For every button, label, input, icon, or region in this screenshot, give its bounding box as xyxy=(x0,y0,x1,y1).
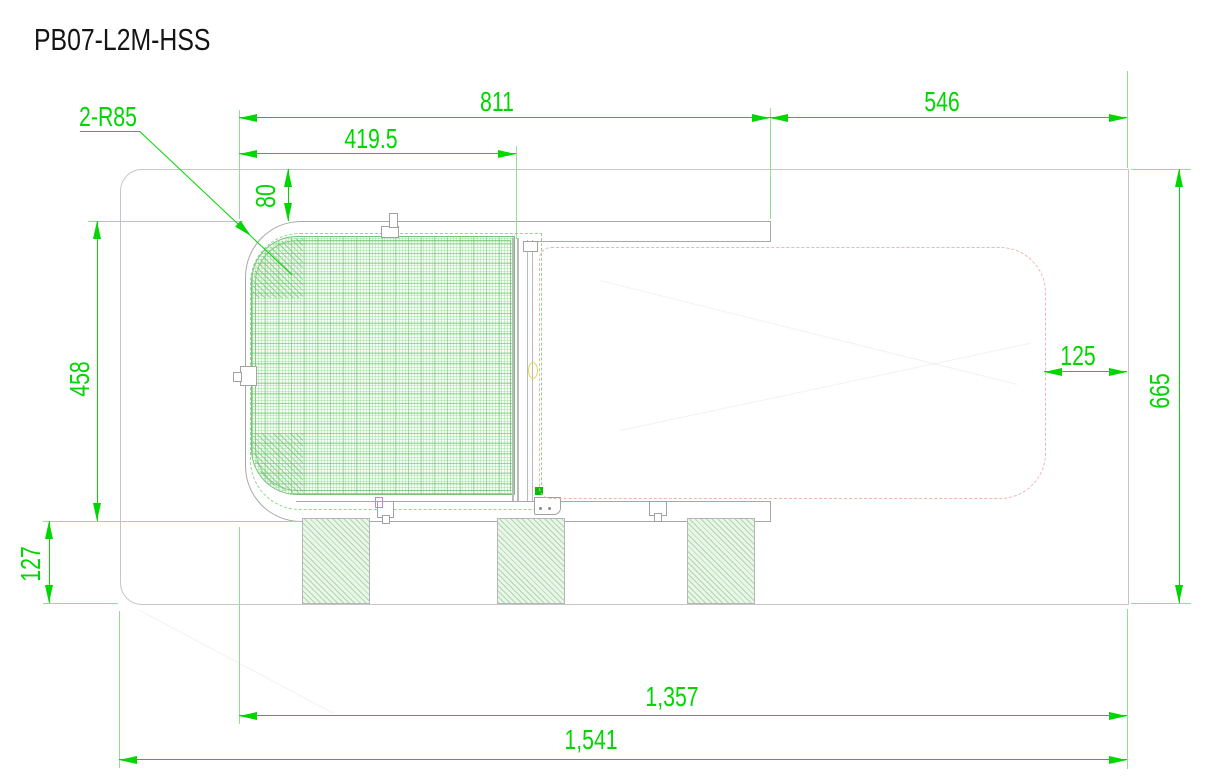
dim-arrow xyxy=(239,114,257,122)
extension-line xyxy=(88,221,243,222)
dim-label-546: 546 xyxy=(924,86,960,118)
dim-arrow xyxy=(770,114,788,122)
frame-top-band xyxy=(537,221,771,242)
dim-label-419-5: 419.5 xyxy=(344,123,397,155)
dim-arrow xyxy=(93,503,101,521)
mounting-pad xyxy=(302,518,370,604)
extension-line xyxy=(1127,609,1128,769)
dim-label-125: 125 xyxy=(1060,340,1096,372)
mounting-pad xyxy=(687,518,755,604)
dim-arrow xyxy=(1175,585,1183,603)
dim-arrow xyxy=(239,712,257,720)
dim-arrow xyxy=(45,521,53,539)
dim-line-1357 xyxy=(239,715,1127,716)
crease-line xyxy=(140,610,335,714)
dim-label-458: 458 xyxy=(64,361,96,397)
cad-drawing-canvas: PB07-L2M-HSS xyxy=(0,0,1214,776)
dim-arrow xyxy=(45,585,53,603)
rail-top-cap xyxy=(523,241,538,252)
dim-line-665 xyxy=(1179,169,1180,603)
dim-arrow xyxy=(1109,756,1127,764)
left-clip xyxy=(240,366,257,386)
extension-line xyxy=(119,611,120,768)
dim-line-1541 xyxy=(119,759,1127,760)
extension-line xyxy=(770,108,771,219)
bottom-clip-stem xyxy=(382,515,390,524)
left-clip-stem xyxy=(233,372,242,382)
dim-label-80: 80 xyxy=(250,184,282,208)
dim-label-r85: 2-R85 xyxy=(79,101,137,133)
dim-arrow xyxy=(1109,368,1127,376)
dim-arrow xyxy=(284,203,292,221)
extension-line xyxy=(43,603,118,604)
dim-arrow xyxy=(239,150,257,158)
yellow-marker xyxy=(528,362,538,379)
dim-arrow xyxy=(93,221,101,239)
dim-label-1357: 1,357 xyxy=(645,681,698,713)
drawing-title: PB07-L2M-HSS xyxy=(34,22,210,58)
dim-arrow xyxy=(498,150,516,158)
bolt-dot xyxy=(548,507,551,510)
bolt-dot xyxy=(539,507,542,510)
dim-arrow xyxy=(1109,114,1127,122)
mounting-pad xyxy=(497,518,565,604)
dim-arrow xyxy=(119,756,137,764)
leader-underline xyxy=(80,131,140,132)
rail-line xyxy=(512,238,514,501)
dim-arrow xyxy=(752,114,770,122)
dim-line-458 xyxy=(97,221,98,521)
bottom-clip-stem xyxy=(654,513,662,522)
extension-line xyxy=(516,146,517,239)
extension-line xyxy=(1131,603,1191,604)
magenta-marker xyxy=(375,497,383,508)
dim-arrow xyxy=(284,169,292,187)
extension-line xyxy=(1127,71,1128,168)
phantom-cover-outline xyxy=(539,247,1046,499)
rail-line xyxy=(517,238,519,501)
rail-bottom-bracket xyxy=(534,497,561,515)
extension-line xyxy=(43,521,300,522)
dim-label-1541: 1,541 xyxy=(564,724,617,756)
dim-label-811: 811 xyxy=(480,86,514,118)
extension-line xyxy=(239,527,240,724)
extension-line xyxy=(239,110,240,219)
dim-label-127: 127 xyxy=(15,546,47,582)
dim-arrow xyxy=(1175,169,1183,187)
dim-arrow xyxy=(1109,712,1127,720)
dim-label-665: 665 xyxy=(1144,373,1176,409)
top-clip-stem xyxy=(389,213,398,228)
